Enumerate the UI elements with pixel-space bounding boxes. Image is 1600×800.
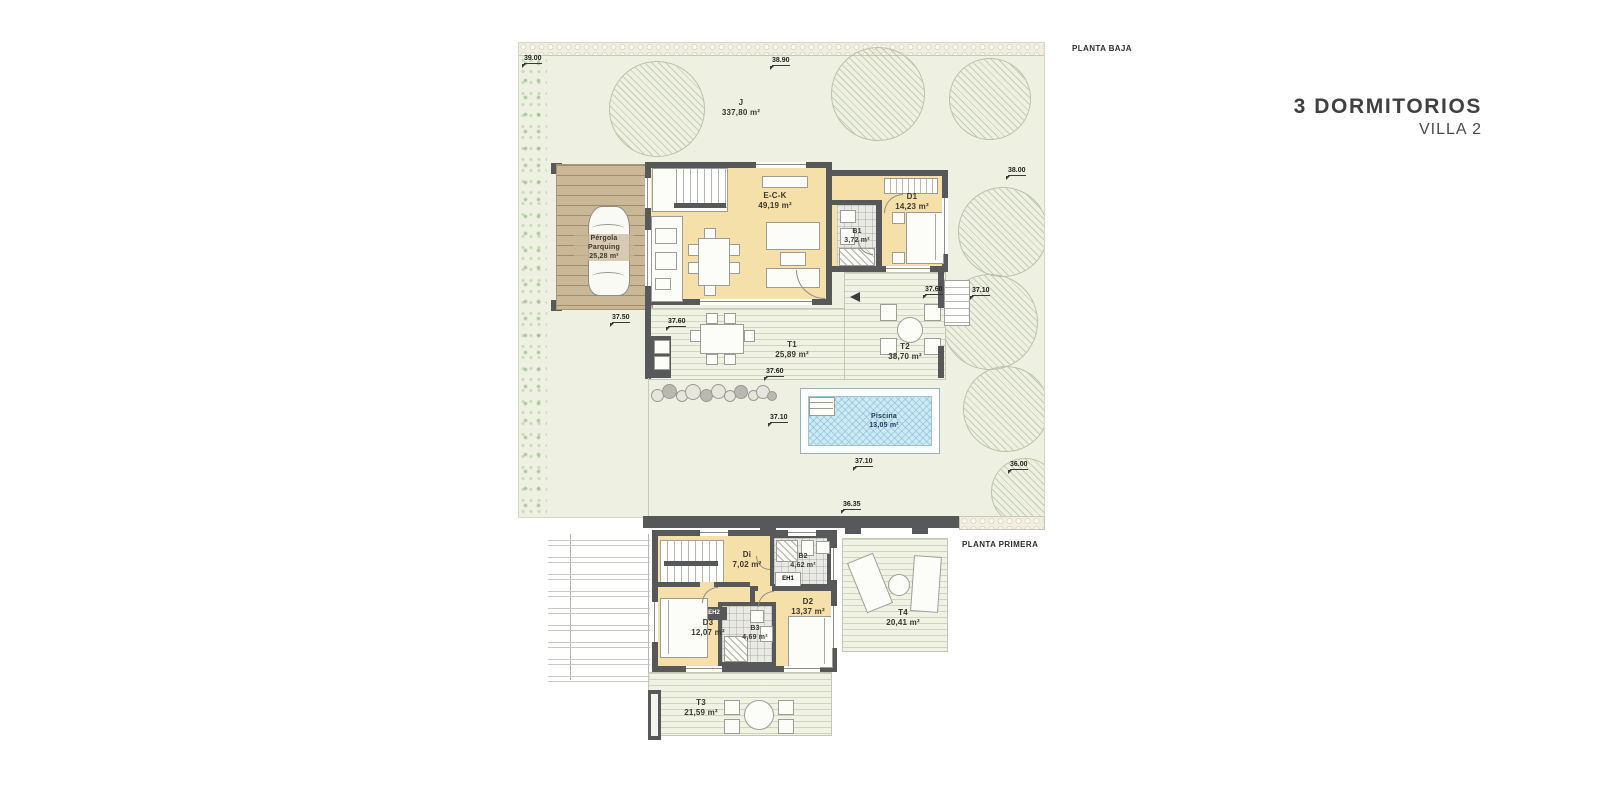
sliding-door: [700, 299, 812, 305]
outdoor-chair: [690, 330, 701, 342]
window: [756, 162, 806, 168]
outdoor-chair: [724, 313, 736, 324]
bathroom1-label: B1 3,72 m²: [835, 227, 879, 245]
dining-chair: [688, 244, 699, 256]
plan-title: 3 DORMITORIOS: [1200, 95, 1482, 119]
pergola-slat: [548, 540, 650, 546]
garden-label: J 337,80 m²: [711, 98, 771, 118]
pool-label: Piscina 13,05 m²: [854, 412, 914, 430]
pool-step-line: [809, 408, 833, 409]
car-windshield: [592, 224, 624, 233]
pergola-label: Pérgola Parquing 25,28 m²: [574, 234, 634, 261]
ground-floor-tag: PLANTA BAJA: [1072, 44, 1132, 53]
dimension-label: 37.10: [770, 414, 788, 423]
terrace-chair: [778, 700, 794, 715]
vegetation-strip-left: [519, 55, 547, 517]
outdoor-dining-table: [700, 324, 744, 354]
dimension-label: 39.00: [524, 55, 542, 64]
window: [942, 198, 948, 254]
dining-chair: [704, 228, 716, 239]
shrub-icon: [685, 384, 701, 400]
outdoor-chair: [706, 313, 718, 324]
planter-inner: [651, 694, 658, 736]
terrace-chair: [880, 304, 897, 321]
pool-step-line: [809, 402, 833, 403]
entrance-arrow-icon: [850, 292, 860, 302]
outdoor-chair: [724, 354, 736, 365]
tree-icon: [831, 47, 925, 141]
bed-pillow-line: [824, 618, 825, 664]
pergola-slat: [548, 642, 650, 648]
sofa: [766, 222, 820, 250]
shrub-icon: [662, 384, 677, 399]
closet-eh1: EH1: [775, 572, 801, 587]
terrace-chair: [778, 719, 794, 734]
outdoor-kitchen-unit: [654, 356, 670, 370]
terrace3-label: T3 21,59 m²: [671, 698, 731, 718]
dining-table: [698, 238, 730, 286]
window: [700, 530, 728, 536]
outdoor-kitchen-unit: [654, 340, 670, 354]
terrace2-label: T2 38,70 m²: [875, 342, 935, 362]
bed-pillow-line: [668, 600, 669, 654]
nightstand: [892, 252, 905, 264]
dimension-label: 36.35: [843, 501, 861, 510]
terrace-wall: [938, 346, 944, 378]
terrace-chair: [724, 719, 740, 734]
bathroom2-label: B2 4,62 m²: [781, 552, 825, 570]
pool-steps: [809, 397, 835, 416]
bedroom1-bed: [906, 212, 944, 264]
tv-unit: [762, 176, 808, 188]
pergola-slat: [548, 608, 650, 614]
tree-icon: [609, 61, 705, 157]
shrub-icon: [767, 391, 777, 401]
terrace-table: [897, 317, 923, 343]
dimension-label: 37.50: [612, 314, 630, 323]
garden-edge-line: [648, 378, 649, 516]
car-rear-window: [592, 272, 624, 281]
pergola-slat: [548, 591, 650, 597]
bedroom2-label: D2 13,37 m²: [778, 597, 838, 617]
staircase-ground: [676, 168, 728, 208]
wall-pillar: [845, 528, 861, 534]
tree-icon: [963, 366, 1045, 452]
floor-plan-canvas: 3 DORMITORIOS VILLA 2 PLANTA BAJA J 337,…: [0, 0, 1600, 800]
first-floor-tag: PLANTA PRIMERA: [962, 540, 1038, 549]
tree-icon: [958, 187, 1045, 277]
terrace1-label: T1 25,89 m²: [762, 340, 822, 360]
pergola-slat: [548, 625, 650, 631]
dimension-label: 37.60: [925, 286, 943, 295]
garden-steps: [944, 280, 970, 326]
window: [652, 602, 658, 642]
kitchen-stove: [655, 252, 677, 270]
tree-icon: [949, 58, 1031, 140]
dining-chair: [729, 244, 740, 256]
dimension-label: 37.60: [766, 368, 784, 377]
terrace-table: [744, 700, 774, 730]
stair-rail: [664, 561, 718, 566]
dining-chair: [704, 285, 716, 296]
dining-chair: [688, 262, 699, 274]
dimension-label: 36.00: [1010, 461, 1028, 470]
nightstand: [892, 212, 905, 224]
sun-lounger: [910, 555, 942, 613]
window: [645, 230, 651, 286]
wall-pillar: [912, 528, 928, 534]
door-opening: [758, 586, 772, 591]
dining-chair: [729, 262, 740, 274]
dimension-label: 38.90: [772, 57, 790, 66]
dimension-label: 37.10: [855, 458, 873, 467]
pergola-slat: [548, 659, 650, 665]
door-opening: [700, 582, 714, 587]
boundary-wall: [643, 516, 959, 528]
pergola-slat: [548, 574, 650, 580]
kitchen-appliance: [655, 278, 671, 290]
bedroom1-label: D1 14,23 m²: [882, 192, 942, 212]
terrace4-label: T4 20,41 m²: [873, 608, 933, 628]
dimension-label: 37.10: [972, 287, 990, 296]
side-table: [888, 574, 910, 596]
title-block: 3 DORMITORIOS VILLA 2: [1200, 95, 1482, 141]
dimension-label: 38.00: [1008, 167, 1026, 176]
gravel-border-bottom: [959, 516, 1045, 530]
hall-label: Di 7,02 m²: [717, 550, 777, 570]
entry-door-opening: [645, 178, 651, 208]
bathroom3-label: B3 4,69 m²: [725, 624, 785, 642]
dimension-label: 37.60: [668, 318, 686, 327]
outdoor-chair: [744, 330, 755, 342]
window: [831, 548, 837, 580]
pergola-slat: [548, 557, 650, 563]
gravel-border-top: [518, 42, 1045, 56]
living-label: E-C-K 49,19 m²: [745, 191, 805, 211]
bathroom1-sink: [840, 210, 856, 223]
bedroom2-bed: [788, 616, 833, 668]
pergola-slat: [548, 676, 650, 682]
bed-pillow-line: [935, 214, 936, 260]
stair-wall: [674, 203, 726, 208]
outdoor-chair: [706, 354, 718, 365]
kitchen-sink: [655, 228, 677, 244]
coffee-table: [780, 252, 806, 266]
bathroom3-sink: [750, 610, 764, 623]
window: [788, 530, 816, 536]
shrub-icon: [734, 385, 748, 399]
plan-subtitle: VILLA 2: [1200, 119, 1482, 141]
